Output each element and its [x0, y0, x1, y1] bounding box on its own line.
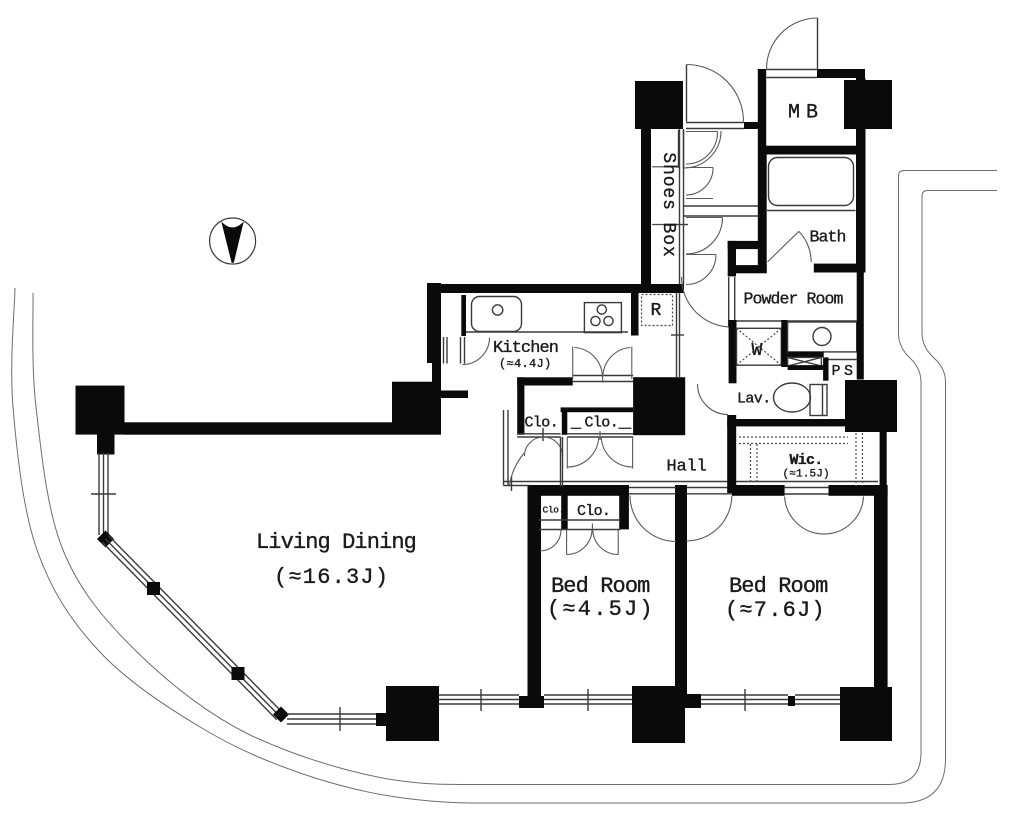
svg-text:Kitchen: Kitchen — [493, 339, 558, 358]
svg-text:PS: PS — [832, 363, 857, 380]
svg-text:Bed Room: Bed Room — [729, 574, 828, 599]
svg-text:(≈4.4J): (≈4.4J) — [499, 357, 552, 371]
svg-text:Living Dining: Living Dining — [256, 530, 416, 555]
svg-text:R: R — [651, 301, 662, 321]
svg-text:Wic.: Wic. — [790, 452, 823, 469]
svg-text:(≈4.5J): (≈4.5J) — [547, 597, 655, 622]
svg-text:Powder Room: Powder Room — [744, 290, 844, 309]
svg-text:(≈1.5J): (≈1.5J) — [783, 469, 830, 481]
svg-text:Clo.: Clo. — [543, 505, 565, 516]
svg-text:Clo.: Clo. — [585, 415, 619, 432]
svg-text:Lav.: Lav. — [737, 391, 771, 408]
svg-text:(≈7.6J): (≈7.6J) — [725, 598, 826, 623]
svg-text:Bath: Bath — [810, 228, 846, 247]
svg-text:Hall: Hall — [667, 458, 707, 477]
svg-text:Shoes Box: Shoes Box — [658, 152, 678, 257]
svg-text:Bed Room: Bed Room — [551, 574, 650, 599]
svg-text:(≈16.3J): (≈16.3J) — [274, 565, 389, 590]
svg-text:Clo.: Clo. — [525, 415, 559, 432]
svg-text:Clo.: Clo. — [577, 503, 610, 520]
svg-text:MB: MB — [788, 102, 824, 125]
svg-text:W: W — [752, 341, 763, 361]
